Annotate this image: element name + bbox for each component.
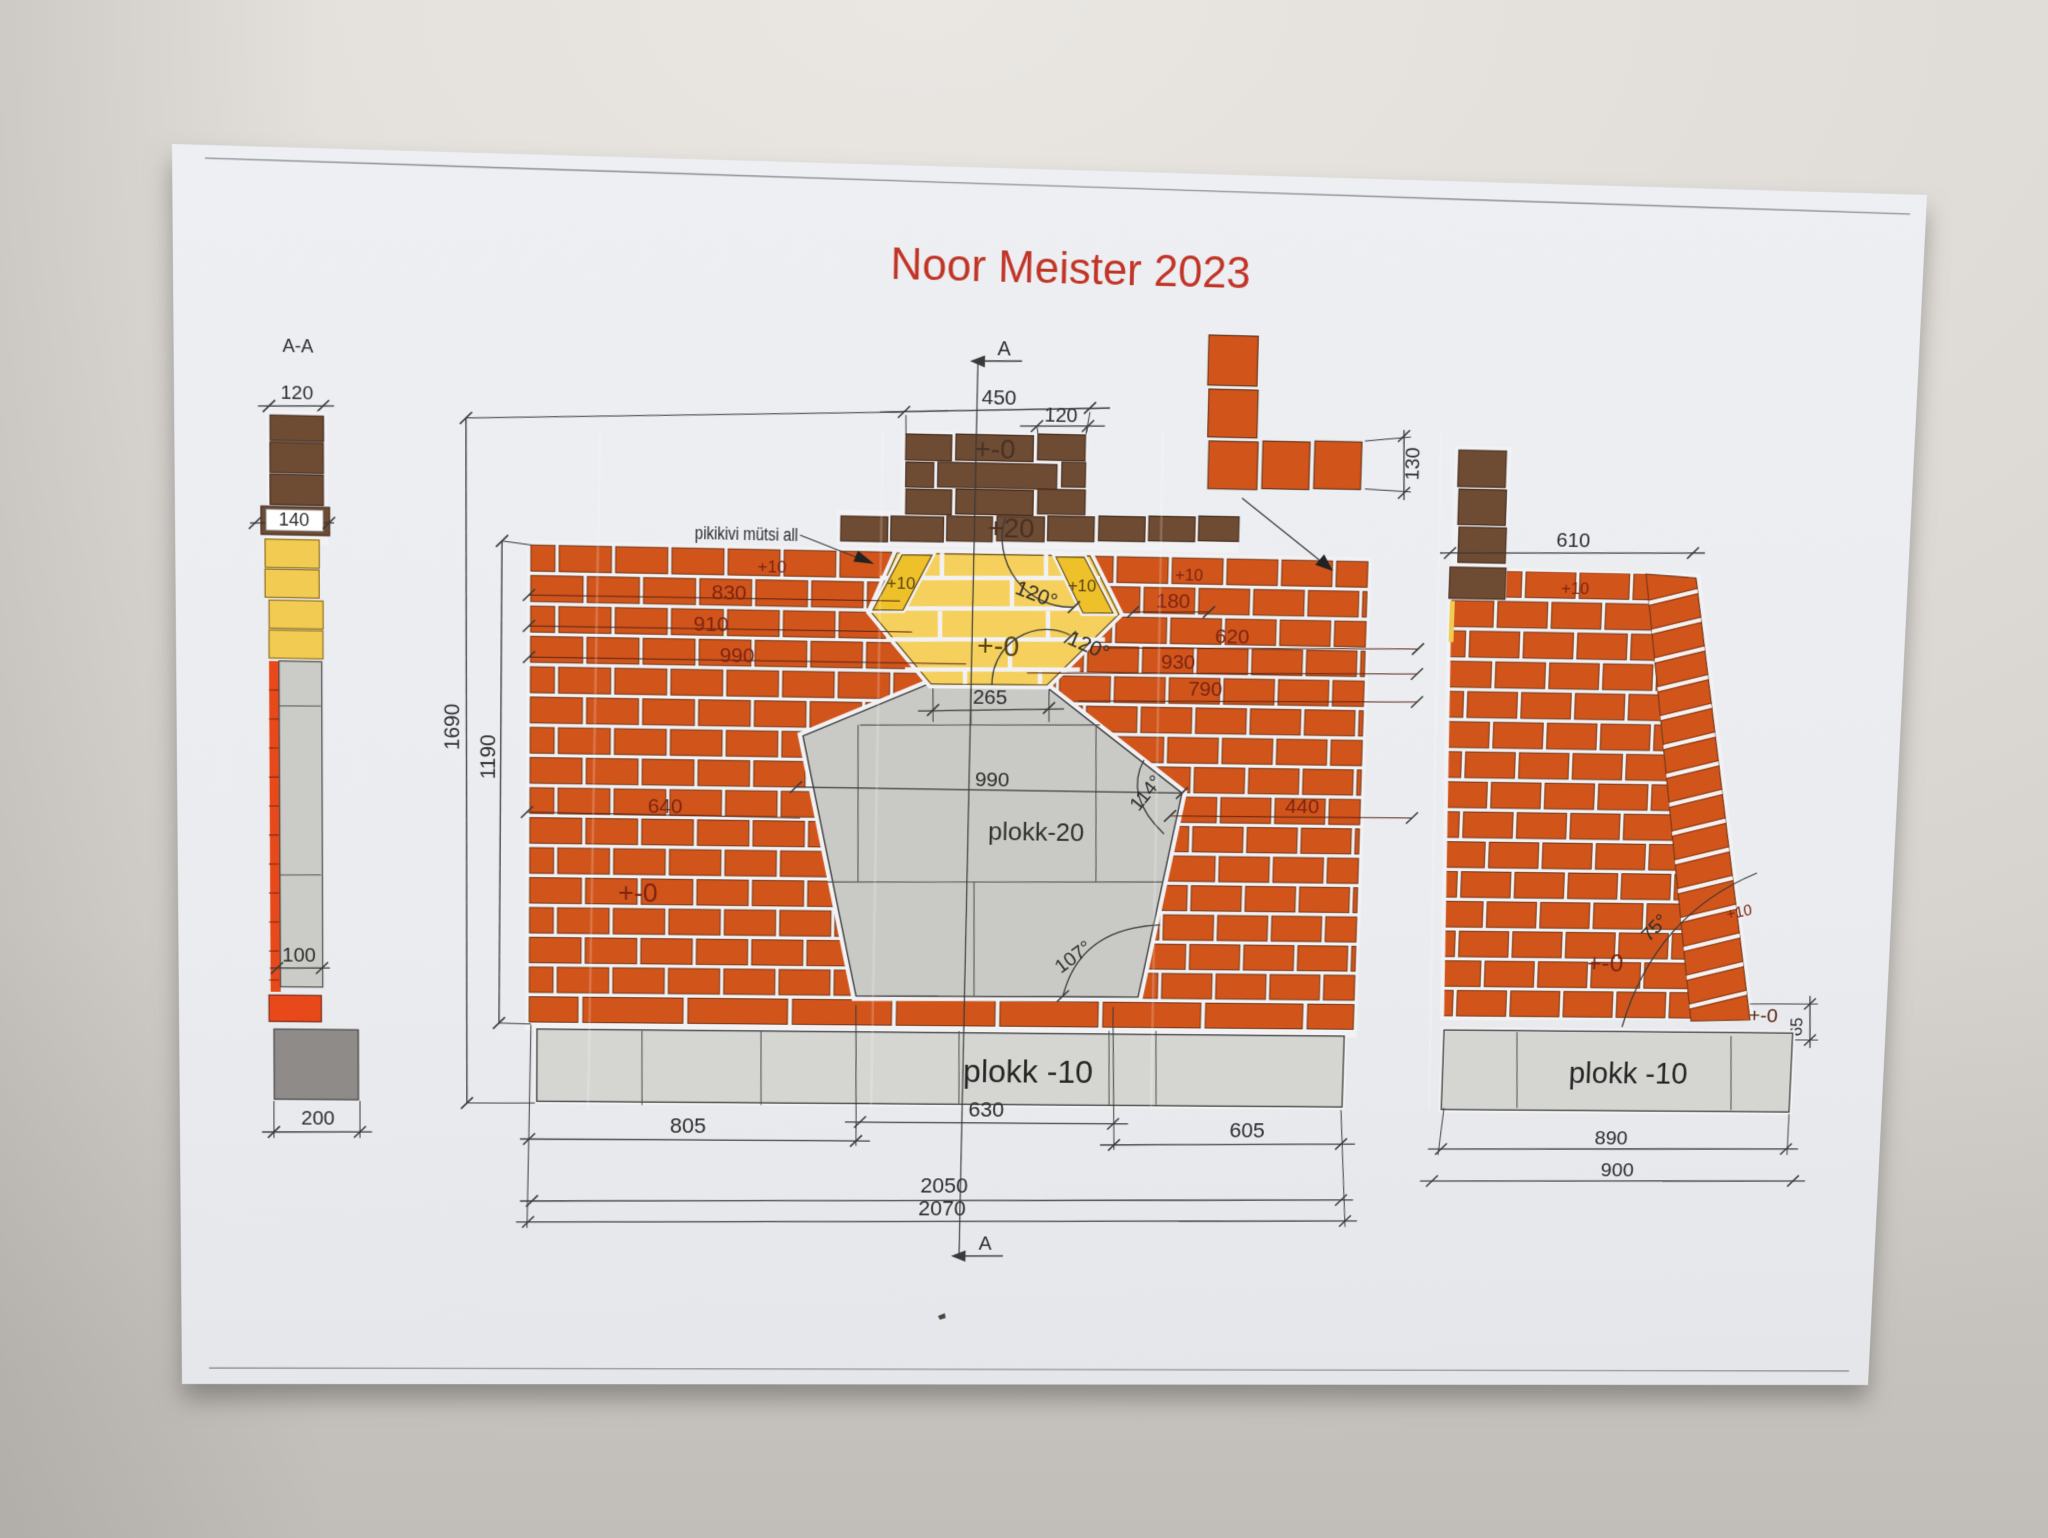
svg-text:630: 630: [968, 1098, 1004, 1122]
svg-text:plokk -10: plokk -10: [963, 1055, 1094, 1091]
svg-text:+-0: +-0: [974, 434, 1016, 466]
svg-text:+10: +10: [758, 556, 787, 576]
svg-text:200: 200: [301, 1108, 334, 1130]
svg-text:2050: 2050: [920, 1174, 968, 1198]
svg-text:890: 890: [1594, 1126, 1628, 1149]
svg-text:2070: 2070: [918, 1196, 966, 1220]
svg-text:+10: +10: [887, 574, 916, 594]
svg-text:640: 640: [648, 794, 683, 818]
svg-text:790: 790: [1188, 677, 1223, 701]
svg-text:1190: 1190: [476, 734, 500, 779]
svg-text:+10: +10: [1175, 566, 1204, 585]
svg-text:A: A: [978, 1234, 991, 1255]
svg-text:605: 605: [1229, 1118, 1265, 1142]
svg-text:+10: +10: [1725, 901, 1753, 923]
svg-text:+-0: +-0: [1587, 948, 1624, 977]
svg-text:140: 140: [279, 509, 310, 530]
svg-text:+10: +10: [1561, 579, 1590, 598]
svg-text:+-0: +-0: [1748, 1004, 1778, 1027]
svg-text:990: 990: [975, 767, 1010, 791]
svg-text:Noor Meister 2023: Noor Meister 2023: [890, 238, 1251, 298]
svg-text:1690: 1690: [440, 703, 464, 750]
svg-text:+10: +10: [1068, 576, 1097, 595]
svg-text:+-0: +-0: [618, 877, 658, 907]
svg-text:130: 130: [1402, 447, 1425, 480]
svg-text:440: 440: [1285, 794, 1320, 818]
svg-text:A: A: [997, 337, 1011, 359]
svg-text:930: 930: [1161, 650, 1196, 674]
svg-text:900: 900: [1600, 1158, 1634, 1181]
svg-text:+20: +20: [987, 513, 1035, 544]
svg-text:620: 620: [1215, 624, 1250, 648]
svg-text:A-A: A-A: [283, 335, 314, 356]
svg-text:120: 120: [281, 382, 314, 404]
svg-text:450: 450: [981, 384, 1016, 409]
svg-text:pikikivi mütsi all: pikikivi mütsi all: [695, 523, 798, 546]
svg-text:805: 805: [670, 1114, 706, 1138]
svg-text:120: 120: [1044, 404, 1078, 427]
svg-text:plokk-20: plokk-20: [988, 817, 1085, 847]
svg-text:830: 830: [711, 581, 746, 605]
svg-text:910: 910: [693, 612, 728, 636]
svg-text:100: 100: [282, 945, 316, 967]
svg-text:990: 990: [719, 643, 754, 667]
svg-text:610: 610: [1556, 528, 1591, 552]
svg-text:plokk -10: plokk -10: [1568, 1056, 1688, 1089]
